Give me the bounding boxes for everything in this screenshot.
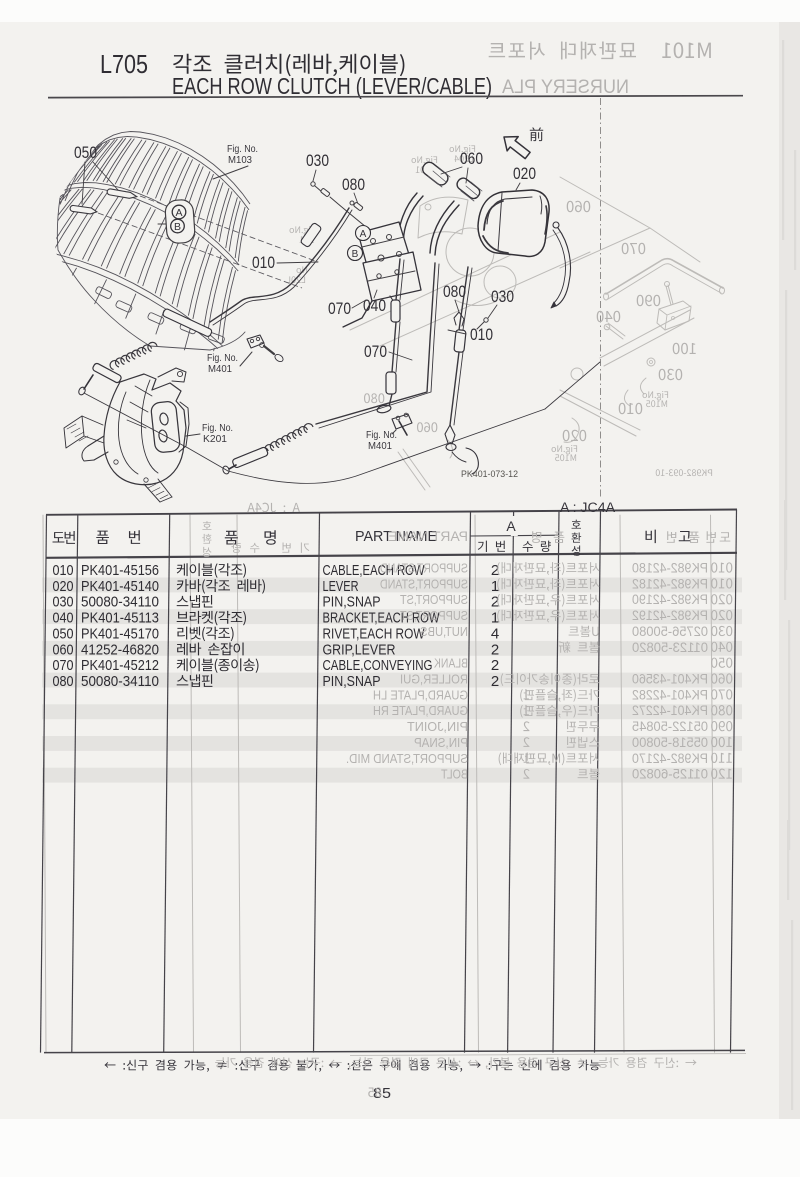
svg-text:PIN,JOINT: PIN,JOINT bbox=[407, 719, 468, 734]
svg-text:PK401-45140: PK401-45140 bbox=[81, 578, 159, 595]
svg-text:2: 2 bbox=[491, 641, 499, 658]
svg-text:RIVET,EACH ROW: RIVET,EACH ROW bbox=[323, 626, 425, 642]
svg-text:PK982-42190: PK982-42190 bbox=[632, 592, 708, 607]
svg-text:040: 040 bbox=[363, 296, 386, 315]
svg-text:SUPPORT,ST: SUPPORT,ST bbox=[400, 608, 468, 623]
svg-text:060: 060 bbox=[460, 149, 483, 168]
svg-text:01123-50820: 01123-50820 bbox=[632, 640, 708, 655]
svg-text:PK982-42180: PK982-42180 bbox=[632, 561, 708, 576]
svg-text:050: 050 bbox=[74, 143, 97, 162]
svg-text:PK982-42182: PK982-42182 bbox=[632, 576, 708, 591]
svg-text:PK401-45156: PK401-45156 bbox=[81, 562, 159, 579]
svg-text:070: 070 bbox=[328, 299, 351, 318]
svg-text:PK401-43560: PK401-43560 bbox=[632, 671, 708, 686]
svg-text:M401: M401 bbox=[208, 363, 232, 375]
svg-text:A: A bbox=[175, 207, 182, 219]
svg-text:B: B bbox=[352, 249, 359, 260]
svg-text:SUPPORT,ST: SUPPORT,ST bbox=[400, 592, 468, 607]
svg-text:BOLT: BOLT bbox=[441, 767, 468, 782]
svg-text:PK401-45113: PK401-45113 bbox=[81, 610, 159, 627]
svg-text:080: 080 bbox=[443, 282, 466, 301]
svg-text:B: B bbox=[174, 221, 181, 233]
svg-text:010: 010 bbox=[53, 562, 74, 579]
svg-text:PK982-42170: PK982-42170 bbox=[632, 751, 708, 766]
svg-text:05518-50800: 05518-50800 bbox=[632, 735, 708, 750]
svg-text:EACH ROW CLUTCH (LEVER/CABLE): EACH ROW CLUTCH (LEVER/CABLE) bbox=[172, 73, 492, 99]
svg-text:PK982-42192: PK982-42192 bbox=[632, 608, 708, 623]
svg-text:PK401-073-12: PK401-073-12 bbox=[461, 469, 518, 480]
svg-text:ROLLER,GUI: ROLLER,GUI bbox=[400, 671, 468, 686]
svg-text:070: 070 bbox=[364, 342, 387, 361]
svg-text:010: 010 bbox=[252, 253, 275, 272]
svg-text:PK401-42282: PK401-42282 bbox=[632, 687, 708, 702]
svg-text:02756-50080: 02756-50080 bbox=[632, 624, 708, 639]
svg-text:A : JC4A: A : JC4A bbox=[560, 500, 615, 515]
svg-text:010: 010 bbox=[470, 325, 493, 344]
svg-text:SUPPORT,STAND MID.: SUPPORT,STAND MID. bbox=[346, 751, 468, 766]
svg-text:NURSERY PLA: NURSERY PLA bbox=[502, 77, 629, 98]
svg-text:SUPPORT,STAND: SUPPORT,STAND bbox=[380, 561, 468, 576]
svg-text:4: 4 bbox=[491, 625, 499, 642]
svg-text:05122-50845: 05122-50845 bbox=[632, 719, 708, 734]
svg-text:BLANK: BLANK bbox=[434, 656, 468, 671]
svg-text:A: A bbox=[360, 229, 367, 240]
svg-text:GUARD,PLATE RH: GUARD,PLATE RH bbox=[373, 703, 468, 718]
svg-text:040: 040 bbox=[53, 610, 74, 627]
svg-text:PIN,SNAP: PIN,SNAP bbox=[323, 674, 381, 690]
svg-text:A: A bbox=[506, 518, 516, 534]
svg-text:030: 030 bbox=[53, 594, 74, 611]
svg-text:080: 080 bbox=[342, 175, 365, 194]
svg-text:SUPPORT,STAND: SUPPORT,STAND bbox=[380, 576, 468, 591]
svg-text:LEVER: LEVER bbox=[323, 579, 359, 595]
svg-text:GRIP,LEVER: GRIP,LEVER bbox=[323, 642, 396, 658]
svg-text:PART NAME: PART NAME bbox=[388, 529, 468, 544]
svg-text:K201: K201 bbox=[203, 433, 227, 445]
svg-text:NUT,UBS: NUT,UBS bbox=[420, 624, 468, 639]
svg-text:2: 2 bbox=[491, 673, 499, 690]
svg-text:M401: M401 bbox=[368, 440, 392, 452]
svg-text:020: 020 bbox=[53, 578, 74, 595]
svg-text:080: 080 bbox=[53, 673, 74, 690]
svg-text:060: 060 bbox=[53, 641, 74, 658]
svg-text:020: 020 bbox=[513, 164, 536, 183]
svg-text:M103: M103 bbox=[228, 154, 252, 166]
svg-text:PK401-45170: PK401-45170 bbox=[81, 625, 159, 642]
svg-text:50080-34110: 50080-34110 bbox=[81, 673, 159, 690]
svg-text:GUARD,PLATE LH: GUARD,PLATE LH bbox=[373, 687, 468, 702]
svg-text:PK401-42272: PK401-42272 bbox=[632, 703, 708, 718]
svg-text:2: 2 bbox=[491, 657, 499, 674]
svg-text:50080-34110: 50080-34110 bbox=[81, 594, 159, 611]
svg-text:070: 070 bbox=[53, 657, 74, 674]
svg-text:01125-60820: 01125-60820 bbox=[632, 767, 708, 782]
svg-text:41252-46820: 41252-46820 bbox=[81, 641, 159, 658]
svg-text:030: 030 bbox=[491, 287, 514, 306]
svg-text:030: 030 bbox=[306, 151, 329, 170]
svg-text:050: 050 bbox=[53, 625, 74, 642]
svg-text:PIN,SNAP: PIN,SNAP bbox=[323, 595, 381, 611]
svg-text:L705: L705 bbox=[100, 49, 148, 79]
svg-text:PK401-45212: PK401-45212 bbox=[81, 657, 159, 674]
svg-text:PIN,SNAP: PIN,SNAP bbox=[414, 735, 468, 750]
